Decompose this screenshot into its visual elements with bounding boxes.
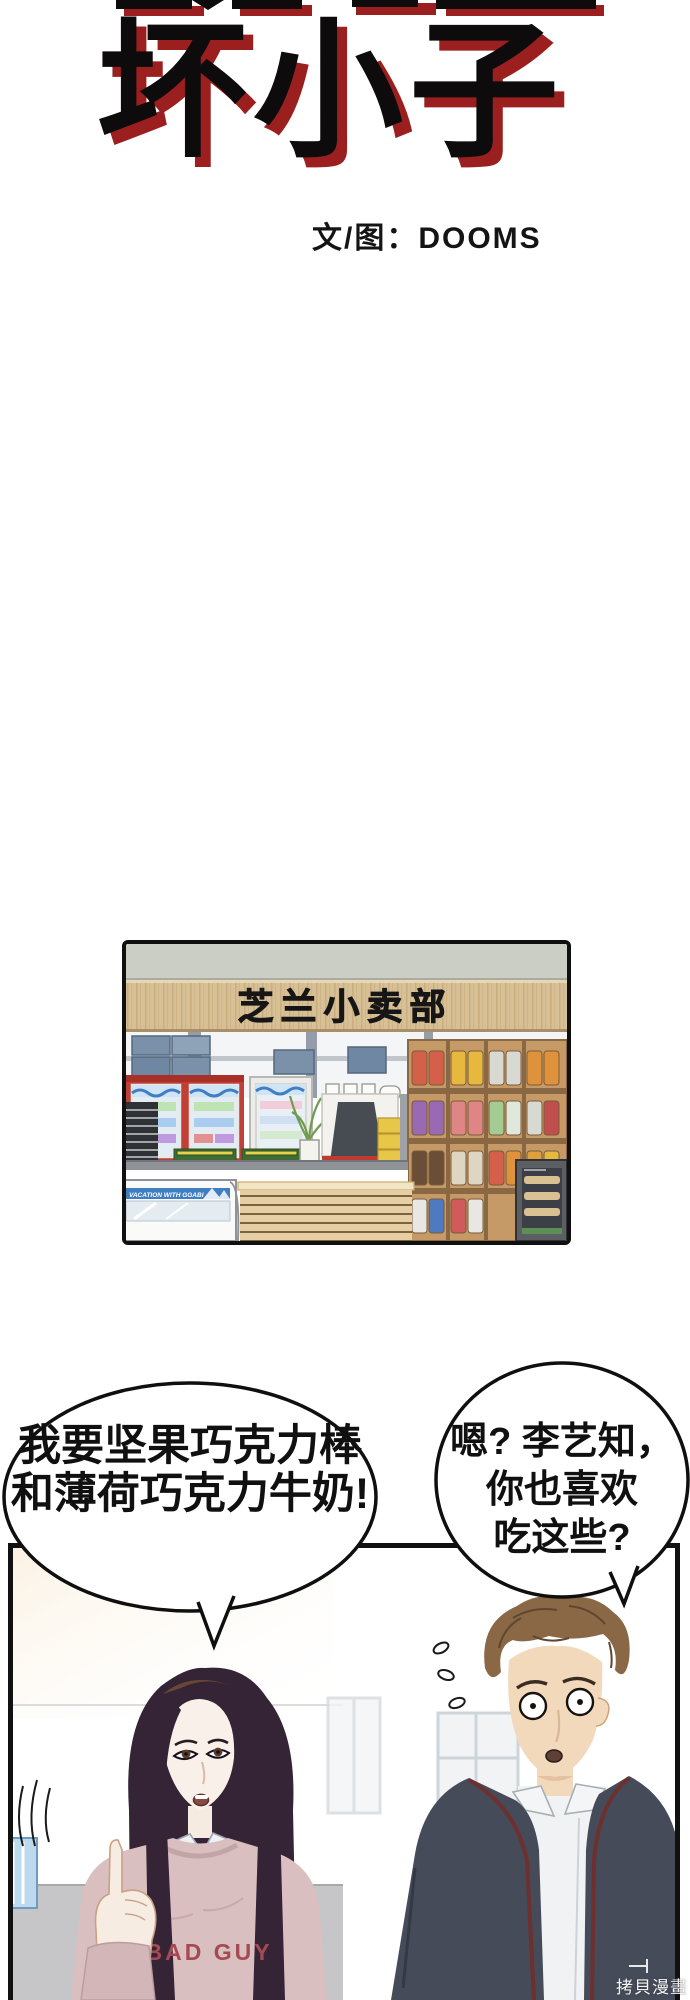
speech-bubble-right: 嗯? 李艺知， 你也喜欢 吃这些? xyxy=(436,1363,688,1604)
bubble-right-line3: 吃这些? xyxy=(493,1517,630,1559)
icecream-freezer: VACATION WITH GGABI xyxy=(126,1180,238,1241)
store-sign-text: 芝兰小卖部 xyxy=(237,986,452,1027)
store-ceiling xyxy=(126,944,567,980)
pastry-case xyxy=(516,1160,567,1241)
speech-bubbles: 我要坚果巧克力棒 和薄荷巧克力牛奶! 嗯? 李艺知， 你也喜欢 吃这些? xyxy=(0,1350,690,1662)
bubble-left-line1: 我要坚果巧克力棒 xyxy=(18,1422,363,1470)
speech-bubble-left: 我要坚果巧克力棒 和薄荷巧克力牛奶! xyxy=(4,1383,376,1646)
store-scene-art: 芝兰小卖部 xyxy=(126,944,567,1241)
author-credit: 文/图：DOOMS xyxy=(312,213,542,257)
site-watermark: 拷貝漫畫 xyxy=(616,1973,688,1998)
freezer-banner-text: VACATION WITH GGABI xyxy=(129,1192,204,1199)
wood-counter xyxy=(238,1182,414,1241)
bubble-right-line1: 嗯? 李艺知， xyxy=(450,1421,674,1463)
blue-carton xyxy=(13,1838,37,1908)
shirt-text: BAD GUY xyxy=(145,1939,272,1965)
page-title: 坏小子 xyxy=(0,10,676,172)
bubble-left-line2: 和薄荷巧克力牛奶! xyxy=(11,1470,369,1518)
webtoon-page: 坏小子 文/图：DOOMS xyxy=(0,0,690,2000)
bubble-right-line2: 你也喜欢 xyxy=(485,1469,638,1511)
store-signboard: 芝兰小卖部 xyxy=(126,980,567,1032)
store-scene-panel: 芝兰小卖部 xyxy=(122,940,571,1245)
tray-stack xyxy=(126,1102,158,1164)
